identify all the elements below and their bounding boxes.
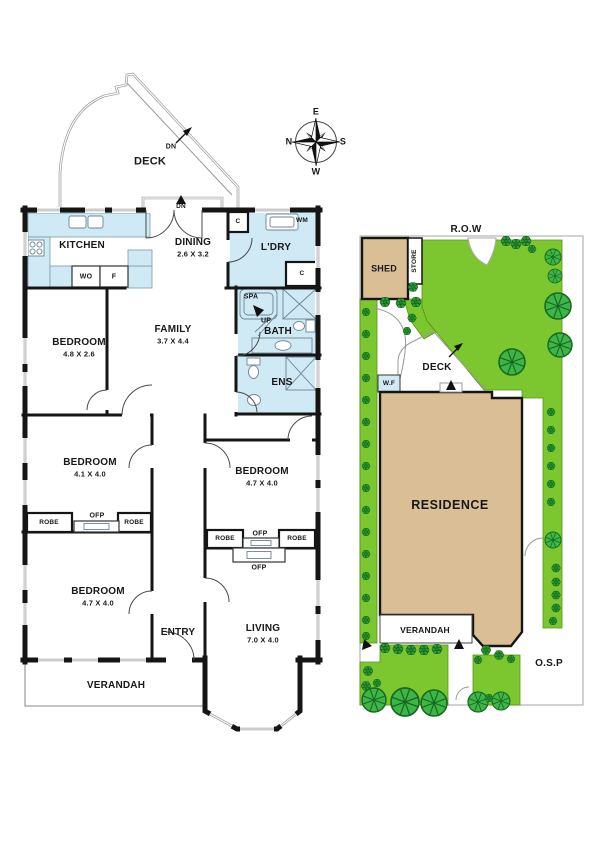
shrub-icon xyxy=(362,462,370,470)
shrub-icon xyxy=(552,604,561,612)
deck-label: DECK xyxy=(134,157,166,168)
dining-dims: 2.6 X 3.2 xyxy=(177,250,209,258)
shrub-icon xyxy=(362,396,370,404)
shrub-icon xyxy=(363,667,373,676)
residence-label: RESIDENCE xyxy=(411,499,488,512)
cupboard-label: C xyxy=(300,271,305,278)
living-label: LIVING xyxy=(246,624,281,634)
site-plan-drawing xyxy=(360,236,583,716)
shrub-icon xyxy=(547,480,555,488)
tree-icon xyxy=(545,293,571,319)
tree-icon xyxy=(499,349,525,375)
fireplace xyxy=(233,548,285,562)
shrub-icon xyxy=(481,646,491,655)
up-label: UP xyxy=(261,318,271,325)
shrub-icon xyxy=(501,236,511,245)
floorplan-page: DECK DN DN KITCHEN WO F DINING 2.6 X 3.2… xyxy=(0,0,601,849)
right-of-way-label: R.O.W xyxy=(451,225,482,235)
tree-icon xyxy=(492,692,510,710)
shrub-icon xyxy=(494,651,504,660)
deck-outline xyxy=(60,74,238,210)
site-verandah-label: VERANDAH xyxy=(400,626,450,635)
verandah-label: VERANDAH xyxy=(87,681,145,691)
compass-north-label: N xyxy=(286,138,293,147)
shrub-icon xyxy=(362,418,370,426)
compass-rose xyxy=(292,118,340,166)
fireplace xyxy=(74,521,119,532)
laundry-label: L'DRY xyxy=(261,243,291,253)
tree-icon xyxy=(548,333,572,357)
shed-label: SHED xyxy=(371,265,397,274)
dn-label: DN xyxy=(176,204,186,211)
shrub-icon xyxy=(362,616,370,624)
shrub-icon xyxy=(362,440,370,448)
shrub-icon xyxy=(547,462,555,470)
robe-label: ROBE xyxy=(124,520,144,527)
site-deck-label: DECK xyxy=(422,363,451,373)
shrub-icon xyxy=(528,245,536,253)
living-dims: 7.0 X 4.0 xyxy=(247,636,279,644)
family-label: FAMILY xyxy=(155,325,192,335)
shrub-icon xyxy=(547,444,555,452)
wall-oven-label: WO xyxy=(80,274,92,281)
ensuite-label: ENS xyxy=(271,378,292,388)
tree-icon xyxy=(548,269,562,283)
shrub-icon xyxy=(362,572,370,580)
shrub-icon xyxy=(362,550,370,558)
tree-icon xyxy=(391,688,419,716)
dining-label: DINING xyxy=(175,238,211,248)
shrub-icon xyxy=(362,374,370,382)
fridge-label: F xyxy=(112,274,116,281)
bedroom-dims: 4.7 X 4.0 xyxy=(82,599,114,607)
shrub-icon xyxy=(362,528,370,536)
shrub-icon xyxy=(411,297,421,306)
shrub-icon xyxy=(406,645,416,654)
robe-label: ROBE xyxy=(39,520,59,527)
fireplace xyxy=(243,538,279,548)
basin xyxy=(248,395,261,406)
shrub-icon xyxy=(393,644,403,653)
fireplace-label: OFP xyxy=(90,513,105,520)
entry-label: ENTRY xyxy=(161,628,196,638)
shrub-icon xyxy=(362,484,370,492)
shrub-icon xyxy=(549,617,557,625)
off-street-parking-label: O.S.P xyxy=(535,659,563,669)
shrub-icon xyxy=(511,239,521,248)
kitchen-label: KITCHEN xyxy=(59,241,105,251)
family-dims: 3.7 X 4.4 xyxy=(157,337,189,345)
shrub-icon xyxy=(408,314,417,322)
shrub-icon xyxy=(362,594,370,602)
shrub-icon xyxy=(419,645,429,654)
bedroom-label: BEDROOM xyxy=(63,458,117,468)
bedroom-dims: 4.8 X 2.6 xyxy=(63,350,95,358)
bedroom-dims: 4.1 X 4.0 xyxy=(74,470,106,478)
shrub-icon xyxy=(396,298,406,307)
washing-machine-label: WM xyxy=(296,218,308,225)
shrub-icon xyxy=(521,236,531,245)
tree-icon xyxy=(545,249,561,265)
shrub-icon xyxy=(474,656,482,664)
tree-icon xyxy=(468,692,488,712)
fireplace-label: OFP xyxy=(252,565,267,572)
toilet xyxy=(306,320,315,332)
bedroom-label: BEDROOM xyxy=(235,467,289,477)
spa-label: SPA xyxy=(244,294,258,301)
shrub-icon xyxy=(373,679,381,687)
bedroom-label: BEDROOM xyxy=(71,587,125,597)
compass-east-label: E xyxy=(313,108,319,117)
shrub-icon xyxy=(362,352,370,360)
shrub-icon xyxy=(362,506,370,514)
shrub-icon xyxy=(408,283,418,292)
shrub-icon xyxy=(547,408,555,416)
shrub-icon xyxy=(552,564,561,572)
toilet xyxy=(247,358,260,365)
shrub-icon xyxy=(432,644,442,653)
shrub-icon xyxy=(380,297,390,306)
water-feature-label: W.F xyxy=(383,381,395,388)
cupboard-label: C xyxy=(236,219,241,226)
dn-label: DN xyxy=(166,144,177,151)
shrub-icon xyxy=(552,578,561,586)
bedroom-label: BEDROOM xyxy=(52,338,106,348)
shrub-icon xyxy=(547,498,555,506)
residence-footprint xyxy=(380,392,522,646)
bedroom-dims: 4.7 X 4.0 xyxy=(246,479,278,487)
shrub-icon xyxy=(362,308,370,316)
robe-label: ROBE xyxy=(287,536,307,543)
shrub-icon xyxy=(403,327,411,335)
shrub-icon xyxy=(507,655,515,663)
robes-and-fireplaces xyxy=(27,513,315,562)
shrub-icon xyxy=(552,591,561,599)
tree-icon xyxy=(362,688,386,712)
robe-label: ROBE xyxy=(215,536,235,543)
shrub-icon xyxy=(547,426,555,434)
shrub-icon xyxy=(362,330,370,338)
tree-icon xyxy=(545,532,561,548)
store-label: STORE xyxy=(412,249,419,272)
plan-graphics xyxy=(0,0,601,849)
compass-west-label: W xyxy=(312,168,321,177)
shrub-icon xyxy=(362,632,370,640)
bath-label: BATH xyxy=(264,327,292,337)
compass-south-label: S xyxy=(340,138,346,147)
tree-icon xyxy=(421,690,447,716)
shrub-icon xyxy=(380,643,390,652)
fireplace-label: OFP xyxy=(253,531,268,538)
